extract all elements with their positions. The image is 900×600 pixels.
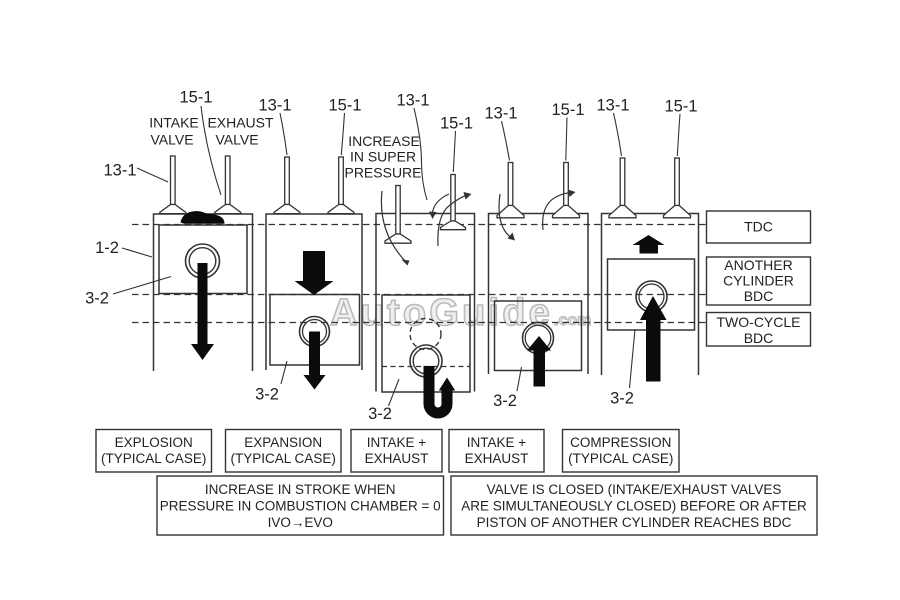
- svg-text:EXHAUST: EXHAUST: [207, 115, 274, 131]
- svg-text:ANOTHER: ANOTHER: [724, 257, 792, 273]
- svg-text:13-1: 13-1: [484, 105, 517, 123]
- svg-text:13-1: 13-1: [103, 162, 136, 180]
- svg-text:INCREASE: INCREASE: [348, 133, 420, 149]
- svg-text:15-1: 15-1: [328, 97, 361, 115]
- svg-text:15-1: 15-1: [179, 89, 212, 107]
- svg-text:IN SUPER: IN SUPER: [350, 149, 416, 165]
- svg-text:15-1: 15-1: [440, 115, 473, 133]
- svg-text:INTAKE +: INTAKE +: [467, 435, 527, 450]
- svg-text:3-2: 3-2: [85, 290, 109, 308]
- svg-text:EXPANSION: EXPANSION: [244, 435, 322, 450]
- svg-text:IVO→EVO: IVO→EVO: [268, 515, 333, 530]
- svg-text:3-2: 3-2: [255, 386, 279, 404]
- svg-text:VALVE IS CLOSED (INTAKE/EXHAUS: VALVE IS CLOSED (INTAKE/EXHAUST VALVES: [487, 482, 782, 497]
- svg-text:13-1: 13-1: [596, 97, 629, 115]
- svg-text:INTAKE: INTAKE: [149, 115, 199, 131]
- svg-text:3-2: 3-2: [610, 390, 634, 408]
- svg-text:INCREASE IN STROKE WHEN: INCREASE IN STROKE WHEN: [205, 482, 396, 497]
- svg-text:EXPLOSION: EXPLOSION: [115, 435, 193, 450]
- svg-text:(TYPICAL CASE): (TYPICAL CASE): [231, 451, 336, 466]
- svg-text:TWO-CYCLE: TWO-CYCLE: [717, 314, 801, 330]
- svg-text:(TYPICAL CASE): (TYPICAL CASE): [568, 451, 673, 466]
- svg-text:3-2: 3-2: [368, 405, 392, 423]
- svg-text:VALVE: VALVE: [150, 132, 193, 148]
- svg-text:PRESSURE IN COMBUSTION CHAMBER: PRESSURE IN COMBUSTION CHAMBER = 0: [160, 499, 441, 514]
- svg-text:BDC: BDC: [744, 288, 774, 304]
- svg-text:CYLINDER: CYLINDER: [723, 273, 794, 289]
- svg-text:15-1: 15-1: [551, 101, 584, 119]
- svg-text:AutoGuide: AutoGuide: [330, 292, 553, 334]
- svg-text:PISTON OF ANOTHER CYLINDER REA: PISTON OF ANOTHER CYLINDER REACHES BDC: [477, 515, 792, 530]
- svg-text:EXHAUST: EXHAUST: [365, 451, 429, 466]
- svg-text:13-1: 13-1: [258, 97, 291, 115]
- svg-text:.com: .com: [554, 312, 591, 329]
- svg-text:EXHAUST: EXHAUST: [465, 451, 529, 466]
- svg-text:13-1: 13-1: [396, 92, 429, 110]
- svg-text:15-1: 15-1: [664, 98, 697, 116]
- svg-text:3-2: 3-2: [493, 392, 517, 410]
- svg-text:TDC: TDC: [744, 219, 773, 235]
- svg-text:1-2: 1-2: [95, 239, 119, 257]
- svg-text:ARE SIMULTANEOUSLY CLOSED) BEF: ARE SIMULTANEOUSLY CLOSED) BEFORE OR AFT…: [461, 499, 807, 514]
- svg-text:PRESSURE: PRESSURE: [344, 165, 421, 181]
- svg-text:VALVE: VALVE: [215, 132, 258, 148]
- svg-text:BDC: BDC: [744, 330, 774, 346]
- svg-text:COMPRESSION: COMPRESSION: [570, 435, 671, 450]
- svg-text:INTAKE +: INTAKE +: [367, 435, 427, 450]
- svg-text:(TYPICAL CASE): (TYPICAL CASE): [101, 451, 206, 466]
